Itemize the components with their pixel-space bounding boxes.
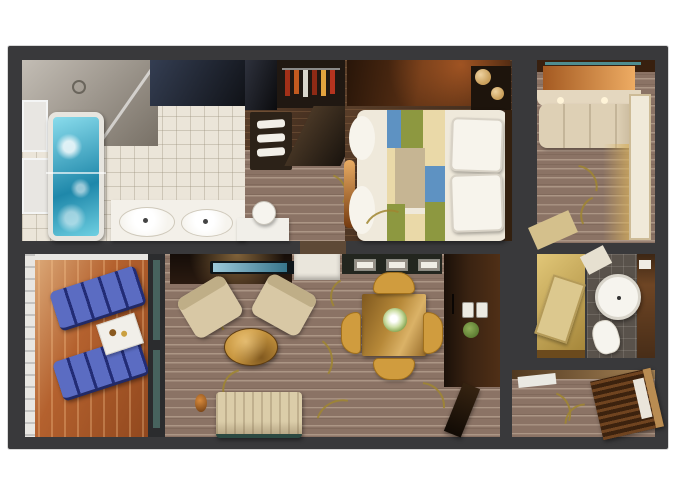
hanging-garment bbox=[330, 70, 335, 94]
runner-patch bbox=[423, 110, 445, 166]
dining-chair bbox=[373, 272, 415, 294]
dining-chair bbox=[373, 358, 415, 380]
towel bbox=[257, 133, 285, 142]
sink-vanity bbox=[111, 200, 245, 241]
master-bedroom bbox=[345, 60, 512, 241]
runner-patch bbox=[387, 110, 401, 148]
wall-plant bbox=[463, 322, 479, 338]
vanity-stool bbox=[252, 201, 276, 225]
floor-plan-image bbox=[0, 0, 680, 486]
luggage-bench bbox=[534, 274, 585, 343]
carpet-vine-ornament bbox=[285, 333, 337, 388]
bathroom-counter bbox=[637, 254, 655, 358]
hanging-garment bbox=[321, 70, 326, 96]
doorway-opening bbox=[300, 241, 346, 254]
tv-screen bbox=[210, 261, 298, 274]
cabinet-handle bbox=[452, 294, 454, 314]
pillow bbox=[450, 117, 504, 173]
tissue-box bbox=[639, 260, 651, 269]
balcony-rail-left bbox=[25, 254, 35, 437]
flower-centerpiece bbox=[383, 308, 407, 332]
window-ledge bbox=[22, 100, 48, 152]
entry-cabinet bbox=[444, 254, 500, 387]
cream-wall-panel bbox=[629, 94, 651, 240]
drink-icon bbox=[108, 328, 117, 337]
faucet-icon bbox=[143, 218, 148, 223]
oval-coffee-table bbox=[224, 328, 278, 366]
round-lamp bbox=[475, 69, 491, 85]
hanging-garment bbox=[285, 70, 290, 96]
balcony-rail-top bbox=[25, 254, 148, 260]
carpet-vine-ornament bbox=[307, 390, 372, 453]
dining-chair bbox=[423, 312, 443, 354]
runner-patch bbox=[395, 148, 425, 208]
window-ledge bbox=[22, 158, 50, 214]
sofa-bed bbox=[539, 104, 643, 148]
angled-cabinet bbox=[590, 368, 664, 440]
whirlpool-bathtub bbox=[48, 112, 104, 241]
duvet-fold bbox=[349, 116, 375, 160]
towel bbox=[257, 147, 285, 157]
shower-head-icon bbox=[72, 80, 86, 94]
balcony bbox=[25, 254, 148, 437]
round-lamp bbox=[491, 87, 504, 100]
tub-glass-divider bbox=[46, 172, 106, 174]
closet-floor-edge bbox=[537, 350, 585, 358]
window-strip bbox=[545, 62, 641, 65]
wall-light bbox=[601, 97, 608, 104]
hanging-garment bbox=[303, 70, 308, 97]
dining-chair bbox=[341, 312, 361, 354]
round-shower-basin bbox=[595, 274, 641, 320]
nightstand bbox=[471, 66, 511, 110]
serving-tray bbox=[418, 259, 440, 271]
hanging-garment bbox=[294, 70, 299, 94]
hallway bbox=[512, 370, 655, 437]
serving-counter bbox=[342, 254, 442, 274]
tv-screen-glass bbox=[213, 263, 287, 272]
dark-cabinet bbox=[245, 60, 277, 110]
headboard bbox=[505, 110, 512, 241]
pillow bbox=[450, 173, 504, 233]
open-entry-door bbox=[444, 383, 480, 438]
luggage-closet bbox=[537, 254, 585, 358]
dressing-area bbox=[245, 60, 345, 241]
second-bedroom bbox=[537, 60, 655, 243]
runner-patch bbox=[425, 166, 445, 202]
hanging-garment bbox=[312, 70, 317, 95]
white-counter bbox=[294, 254, 340, 280]
drain-icon bbox=[617, 296, 621, 300]
runner-patch bbox=[425, 202, 445, 241]
serving-tray bbox=[354, 259, 376, 271]
glass-pane bbox=[153, 350, 160, 428]
warm-glow-floor bbox=[543, 66, 635, 92]
light-switch bbox=[462, 302, 474, 318]
master-bathroom bbox=[22, 60, 245, 241]
second-bathroom bbox=[587, 254, 655, 358]
runner-patch bbox=[387, 148, 395, 204]
entry-wedge bbox=[528, 210, 578, 250]
dining-table bbox=[362, 294, 426, 356]
potted-plant bbox=[195, 394, 207, 412]
glass-pane bbox=[153, 260, 160, 340]
towel bbox=[257, 119, 285, 129]
living-dining-room bbox=[165, 254, 500, 437]
wall-light bbox=[557, 97, 564, 104]
suite-plan bbox=[8, 46, 668, 449]
serving-tray bbox=[386, 259, 408, 271]
toilet bbox=[589, 317, 623, 357]
faucet-icon bbox=[203, 219, 208, 224]
sofa bbox=[216, 392, 302, 438]
drink-icon bbox=[120, 330, 128, 338]
light-switch bbox=[476, 302, 488, 318]
wardrobe bbox=[277, 60, 345, 108]
balcony-glass-door bbox=[148, 254, 165, 437]
mirror-cabinet bbox=[150, 60, 245, 106]
